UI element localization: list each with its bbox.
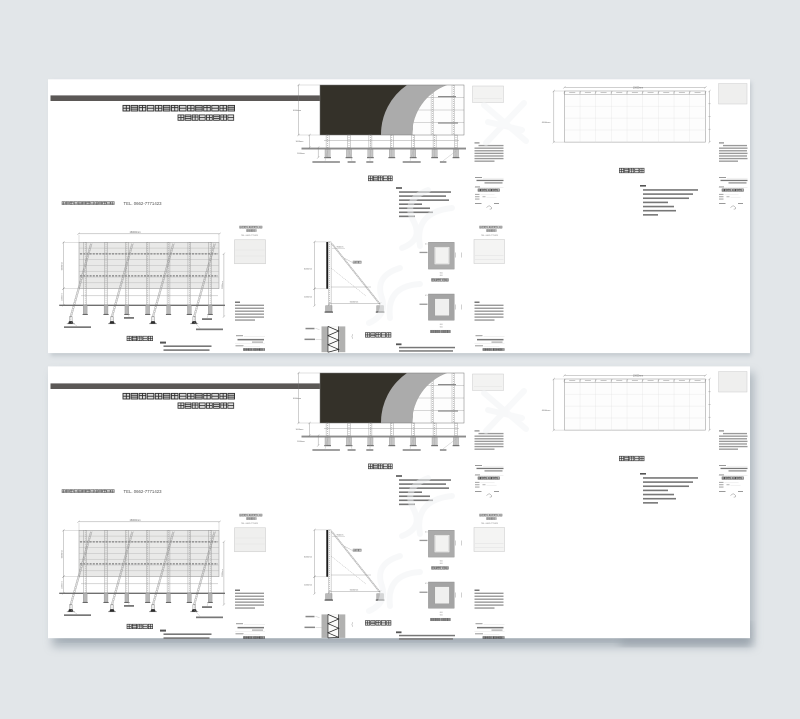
svg-text:16000mm: 16000mm — [129, 231, 140, 234]
svg-text:600: 600 — [440, 612, 443, 614]
svg-text:TEL. 0662-7771423: TEL. 0662-7771423 — [241, 235, 258, 237]
svg-text:16000mm: 16000mm — [129, 519, 140, 522]
svg-text:TEL. 0662-7771423: TEL. 0662-7771423 — [124, 201, 163, 206]
svg-text:600: 600 — [440, 615, 443, 617]
svg-text:900mm: 900mm — [337, 535, 344, 537]
svg-text:6000mm: 6000mm — [293, 110, 301, 112]
svg-text:600: 600 — [440, 272, 443, 274]
svg-text:5000mm: 5000mm — [222, 569, 224, 577]
svg-text:6000mm: 6000mm — [304, 557, 312, 559]
svg-text:1000mm: 1000mm — [297, 153, 305, 155]
svg-text:600: 600 — [440, 563, 443, 565]
svg-text:1000mm: 1000mm — [296, 429, 304, 431]
svg-text:1000mm: 1000mm — [304, 297, 312, 299]
svg-text:4.5: 4.5 — [425, 244, 428, 246]
svg-text:6000mm: 6000mm — [62, 262, 64, 271]
svg-text:1000mm: 1000mm — [296, 141, 304, 143]
svg-text:6000mm: 6000mm — [304, 269, 312, 271]
svg-text:TEL. 0662-7771423: TEL. 0662-7771423 — [481, 235, 498, 237]
svg-text:600: 600 — [440, 560, 443, 562]
svg-text:600: 600 — [440, 275, 443, 277]
svg-text:TEL. 0662-7771423: TEL. 0662-7771423 — [481, 523, 498, 525]
svg-text:600: 600 — [440, 324, 443, 326]
svg-text:6000mm: 6000mm — [62, 550, 64, 559]
svg-text:TEL. 0662-7771423: TEL. 0662-7771423 — [241, 523, 258, 525]
svg-text:1000mm: 1000mm — [304, 585, 312, 587]
svg-text:5000mm: 5000mm — [350, 301, 359, 303]
svg-text:600: 600 — [440, 327, 443, 329]
svg-text:5000mm: 5000mm — [350, 589, 359, 591]
svg-text:10000mm: 10000mm — [633, 375, 643, 377]
svg-text:10000mm: 10000mm — [633, 87, 643, 89]
svg-text:TEL. 0662-7771423: TEL. 0662-7771423 — [124, 489, 163, 494]
svg-text:1000mm: 1000mm — [62, 293, 64, 301]
svg-text:1000mm: 1000mm — [62, 581, 64, 589]
svg-text:4000mm: 4000mm — [542, 410, 551, 412]
svg-text:4.5: 4.5 — [425, 532, 428, 534]
svg-text:6000mm: 6000mm — [293, 398, 301, 400]
svg-text:5000mm: 5000mm — [222, 281, 224, 289]
svg-text:4.5: 4.5 — [425, 295, 428, 297]
svg-text:900mm: 900mm — [337, 247, 344, 249]
svg-text:4.5: 4.5 — [425, 583, 428, 585]
svg-text:1000mm: 1000mm — [297, 441, 305, 443]
svg-text:4000mm: 4000mm — [542, 122, 551, 124]
